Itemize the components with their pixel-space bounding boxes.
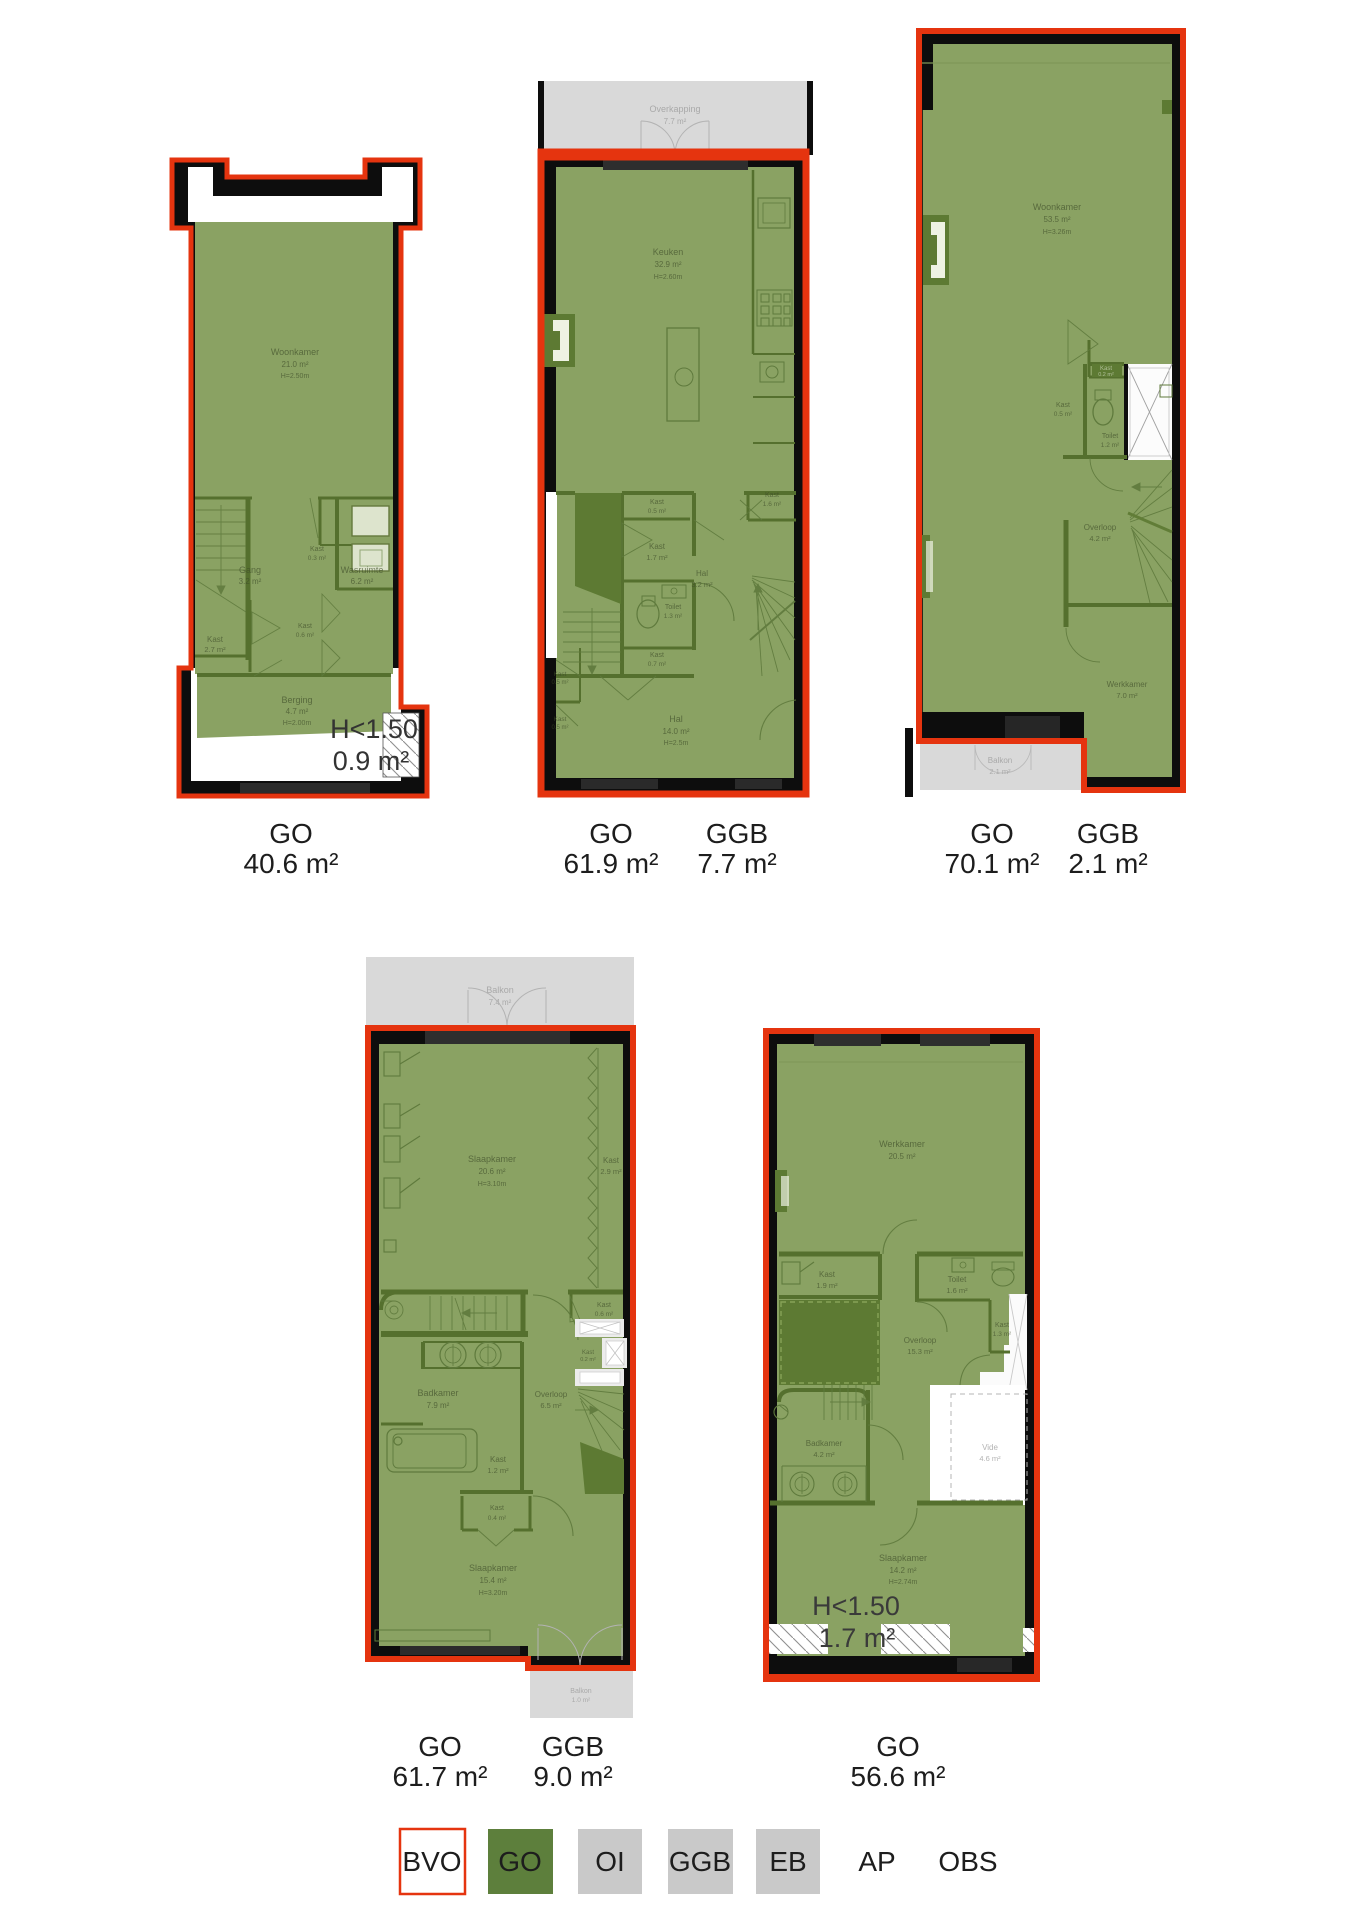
svg-text:0.6 m²: 0.6 m² (296, 632, 315, 639)
svg-text:Kast: Kast (995, 1322, 1009, 1329)
svg-text:Overloop: Overloop (904, 1336, 937, 1345)
svg-text:1.3 m²: 1.3 m² (664, 613, 683, 620)
svg-text:Badkamer: Badkamer (417, 1388, 458, 1398)
svg-text:Kast: Kast (298, 623, 312, 630)
svg-text:GGB: GGB (542, 1731, 604, 1762)
svg-text:32.9 m²: 32.9 m² (654, 260, 681, 269)
svg-text:Wasruimte: Wasruimte (341, 565, 384, 575)
svg-text:Kast: Kast (650, 652, 664, 659)
svg-text:56.6 m²: 56.6 m² (851, 1761, 946, 1792)
svg-text:EB: EB (769, 1846, 806, 1877)
svg-text:H<1.50: H<1.50 (812, 1591, 900, 1621)
svg-text:0.7 m²: 0.7 m² (648, 661, 667, 668)
svg-text:Kast: Kast (490, 1455, 507, 1464)
svg-text:OI: OI (595, 1846, 625, 1877)
svg-text:61.7 m²: 61.7 m² (393, 1761, 488, 1792)
svg-text:4.2 m²: 4.2 m² (1089, 534, 1111, 543)
svg-text:H=3.26m: H=3.26m (1043, 229, 1072, 236)
svg-text:14.2 m²: 14.2 m² (889, 1566, 916, 1575)
svg-text:0.6 m²: 0.6 m² (595, 1311, 614, 1318)
svg-text:Balkon: Balkon (570, 1688, 592, 1695)
svg-text:H=3.10m: H=3.10m (478, 1181, 507, 1188)
svg-text:Hal: Hal (696, 569, 708, 578)
svg-text:H=2.74m: H=2.74m (889, 1579, 918, 1586)
svg-text:1.3 m²: 1.3 m² (993, 1331, 1012, 1338)
svg-text:Slaapkamer: Slaapkamer (468, 1154, 516, 1164)
svg-text:9.0 m²: 9.0 m² (533, 1761, 612, 1792)
svg-text:Kast: Kast (650, 499, 664, 506)
svg-text:53.5 m²: 53.5 m² (1043, 215, 1070, 224)
svg-text:0.3 m²: 0.3 m² (308, 555, 327, 562)
svg-text:Toilet: Toilet (665, 604, 681, 611)
svg-text:7.4 m²: 7.4 m² (489, 998, 512, 1007)
svg-text:Vide: Vide (982, 1443, 998, 1452)
svg-text:Hal: Hal (669, 714, 683, 724)
svg-text:H=3.20m: H=3.20m (479, 1590, 508, 1597)
svg-text:Toilet: Toilet (948, 1275, 967, 1284)
svg-text:Kast: Kast (597, 1302, 611, 1309)
svg-text:2.7 m²: 2.7 m² (204, 645, 226, 654)
svg-text:Badkamer: Badkamer (806, 1439, 843, 1448)
svg-text:Kast: Kast (765, 492, 779, 499)
svg-text:6.2 m²: 6.2 m² (351, 577, 374, 586)
svg-text:GO: GO (970, 818, 1014, 849)
svg-text:GO: GO (589, 818, 633, 849)
svg-text:Kast: Kast (490, 1505, 504, 1512)
svg-text:Werkkamer: Werkkamer (879, 1139, 925, 1149)
svg-text:H=2.60m: H=2.60m (654, 274, 683, 281)
svg-text:Kast: Kast (582, 1350, 594, 1356)
svg-text:3.2 m²: 3.2 m² (691, 580, 713, 589)
svg-text:AP: AP (858, 1846, 895, 1877)
svg-text:1.7 m²: 1.7 m² (646, 553, 668, 562)
svg-text:Kast: Kast (1056, 402, 1070, 409)
svg-text:GO: GO (269, 818, 313, 849)
svg-text:0.5 m²: 0.5 m² (648, 508, 667, 515)
svg-text:70.1 m²: 70.1 m² (945, 848, 1040, 879)
svg-text:GO: GO (876, 1731, 920, 1762)
svg-text:0.5 m²: 0.5 m² (1054, 411, 1073, 418)
svg-text:OBS: OBS (938, 1846, 997, 1877)
svg-text:Berging: Berging (281, 695, 312, 705)
svg-text:1.6 m²: 1.6 m² (763, 501, 782, 508)
svg-text:0.5 m²: 0.5 m² (551, 725, 568, 731)
svg-text:GGB: GGB (1077, 818, 1139, 849)
svg-text:Kast: Kast (603, 1156, 620, 1165)
svg-text:Balkon: Balkon (988, 756, 1012, 765)
svg-text:GGB: GGB (669, 1846, 731, 1877)
svg-text:Kast: Kast (553, 671, 566, 678)
svg-text:0.9 m²: 0.9 m² (333, 746, 410, 776)
svg-text:GO: GO (498, 1846, 542, 1877)
svg-text:20.6 m²: 20.6 m² (478, 1167, 505, 1176)
svg-text:Slaapkamer: Slaapkamer (469, 1563, 517, 1573)
svg-text:2.1 m²: 2.1 m² (1068, 848, 1147, 879)
svg-text:Kast: Kast (207, 635, 224, 644)
svg-text:4.2 m²: 4.2 m² (813, 1450, 835, 1459)
svg-text:0.2 m²: 0.2 m² (580, 1357, 596, 1363)
svg-text:15.3 m²: 15.3 m² (907, 1347, 933, 1356)
svg-text:4.6 m²: 4.6 m² (979, 1454, 1001, 1463)
svg-text:2.1 m²: 2.1 m² (989, 767, 1011, 776)
svg-text:0.5 m²: 0.5 m² (551, 680, 568, 686)
svg-text:Balkon: Balkon (486, 985, 514, 995)
svg-text:1.9 m²: 1.9 m² (816, 1281, 838, 1290)
svg-text:H=2.50m: H=2.50m (281, 373, 310, 380)
svg-text:Kast: Kast (310, 546, 324, 553)
svg-text:Woonkamer: Woonkamer (271, 347, 319, 357)
svg-text:0.2 m²: 0.2 m² (1098, 372, 1114, 378)
svg-text:20.5 m²: 20.5 m² (888, 1152, 915, 1161)
svg-text:21.0 m²: 21.0 m² (281, 360, 308, 369)
svg-text:H<1.50: H<1.50 (330, 714, 418, 744)
svg-text:6.5 m²: 6.5 m² (540, 1401, 562, 1410)
svg-text:H=2.5m: H=2.5m (664, 740, 689, 747)
svg-text:Overkapping: Overkapping (649, 104, 700, 114)
svg-text:61.9 m²: 61.9 m² (564, 848, 659, 879)
svg-text:7.9 m²: 7.9 m² (427, 1401, 450, 1410)
svg-text:7.7 m²: 7.7 m² (664, 117, 687, 126)
svg-text:3.2 m²: 3.2 m² (239, 577, 262, 586)
svg-text:Keuken: Keuken (653, 247, 684, 257)
svg-text:1.2 m²: 1.2 m² (487, 1466, 509, 1475)
svg-text:4.7 m²: 4.7 m² (286, 707, 309, 716)
svg-text:Toilet: Toilet (1102, 433, 1118, 440)
svg-text:GGB: GGB (706, 818, 768, 849)
svg-text:40.6 m²: 40.6 m² (244, 848, 339, 879)
svg-text:1.2 m²: 1.2 m² (1101, 442, 1120, 449)
svg-text:1.7 m²: 1.7 m² (819, 1623, 896, 1653)
svg-text:BVO: BVO (402, 1846, 461, 1877)
svg-text:Kast: Kast (553, 716, 566, 723)
svg-text:Gang: Gang (239, 565, 261, 575)
svg-text:GO: GO (418, 1731, 462, 1762)
svg-text:1.6 m²: 1.6 m² (946, 1286, 968, 1295)
svg-text:7.7 m²: 7.7 m² (697, 848, 776, 879)
svg-text:14.0 m²: 14.0 m² (662, 727, 689, 736)
svg-text:2.9 m²: 2.9 m² (600, 1167, 622, 1176)
svg-text:Overloop: Overloop (1084, 523, 1117, 532)
svg-text:Werkkamer: Werkkamer (1107, 680, 1148, 689)
svg-text:7.0 m²: 7.0 m² (1116, 691, 1138, 700)
svg-text:15.4 m²: 15.4 m² (479, 1576, 506, 1585)
svg-text:Woonkamer: Woonkamer (1033, 202, 1081, 212)
svg-text:1.0 m²: 1.0 m² (572, 1697, 591, 1704)
svg-text:Slaapkamer: Slaapkamer (879, 1553, 927, 1563)
svg-text:0.4 m²: 0.4 m² (488, 1515, 507, 1522)
svg-text:Kast: Kast (649, 542, 666, 551)
svg-text:Overloop: Overloop (535, 1390, 568, 1399)
svg-text:Kast: Kast (819, 1270, 836, 1279)
svg-text:H=2.00m: H=2.00m (283, 720, 312, 727)
